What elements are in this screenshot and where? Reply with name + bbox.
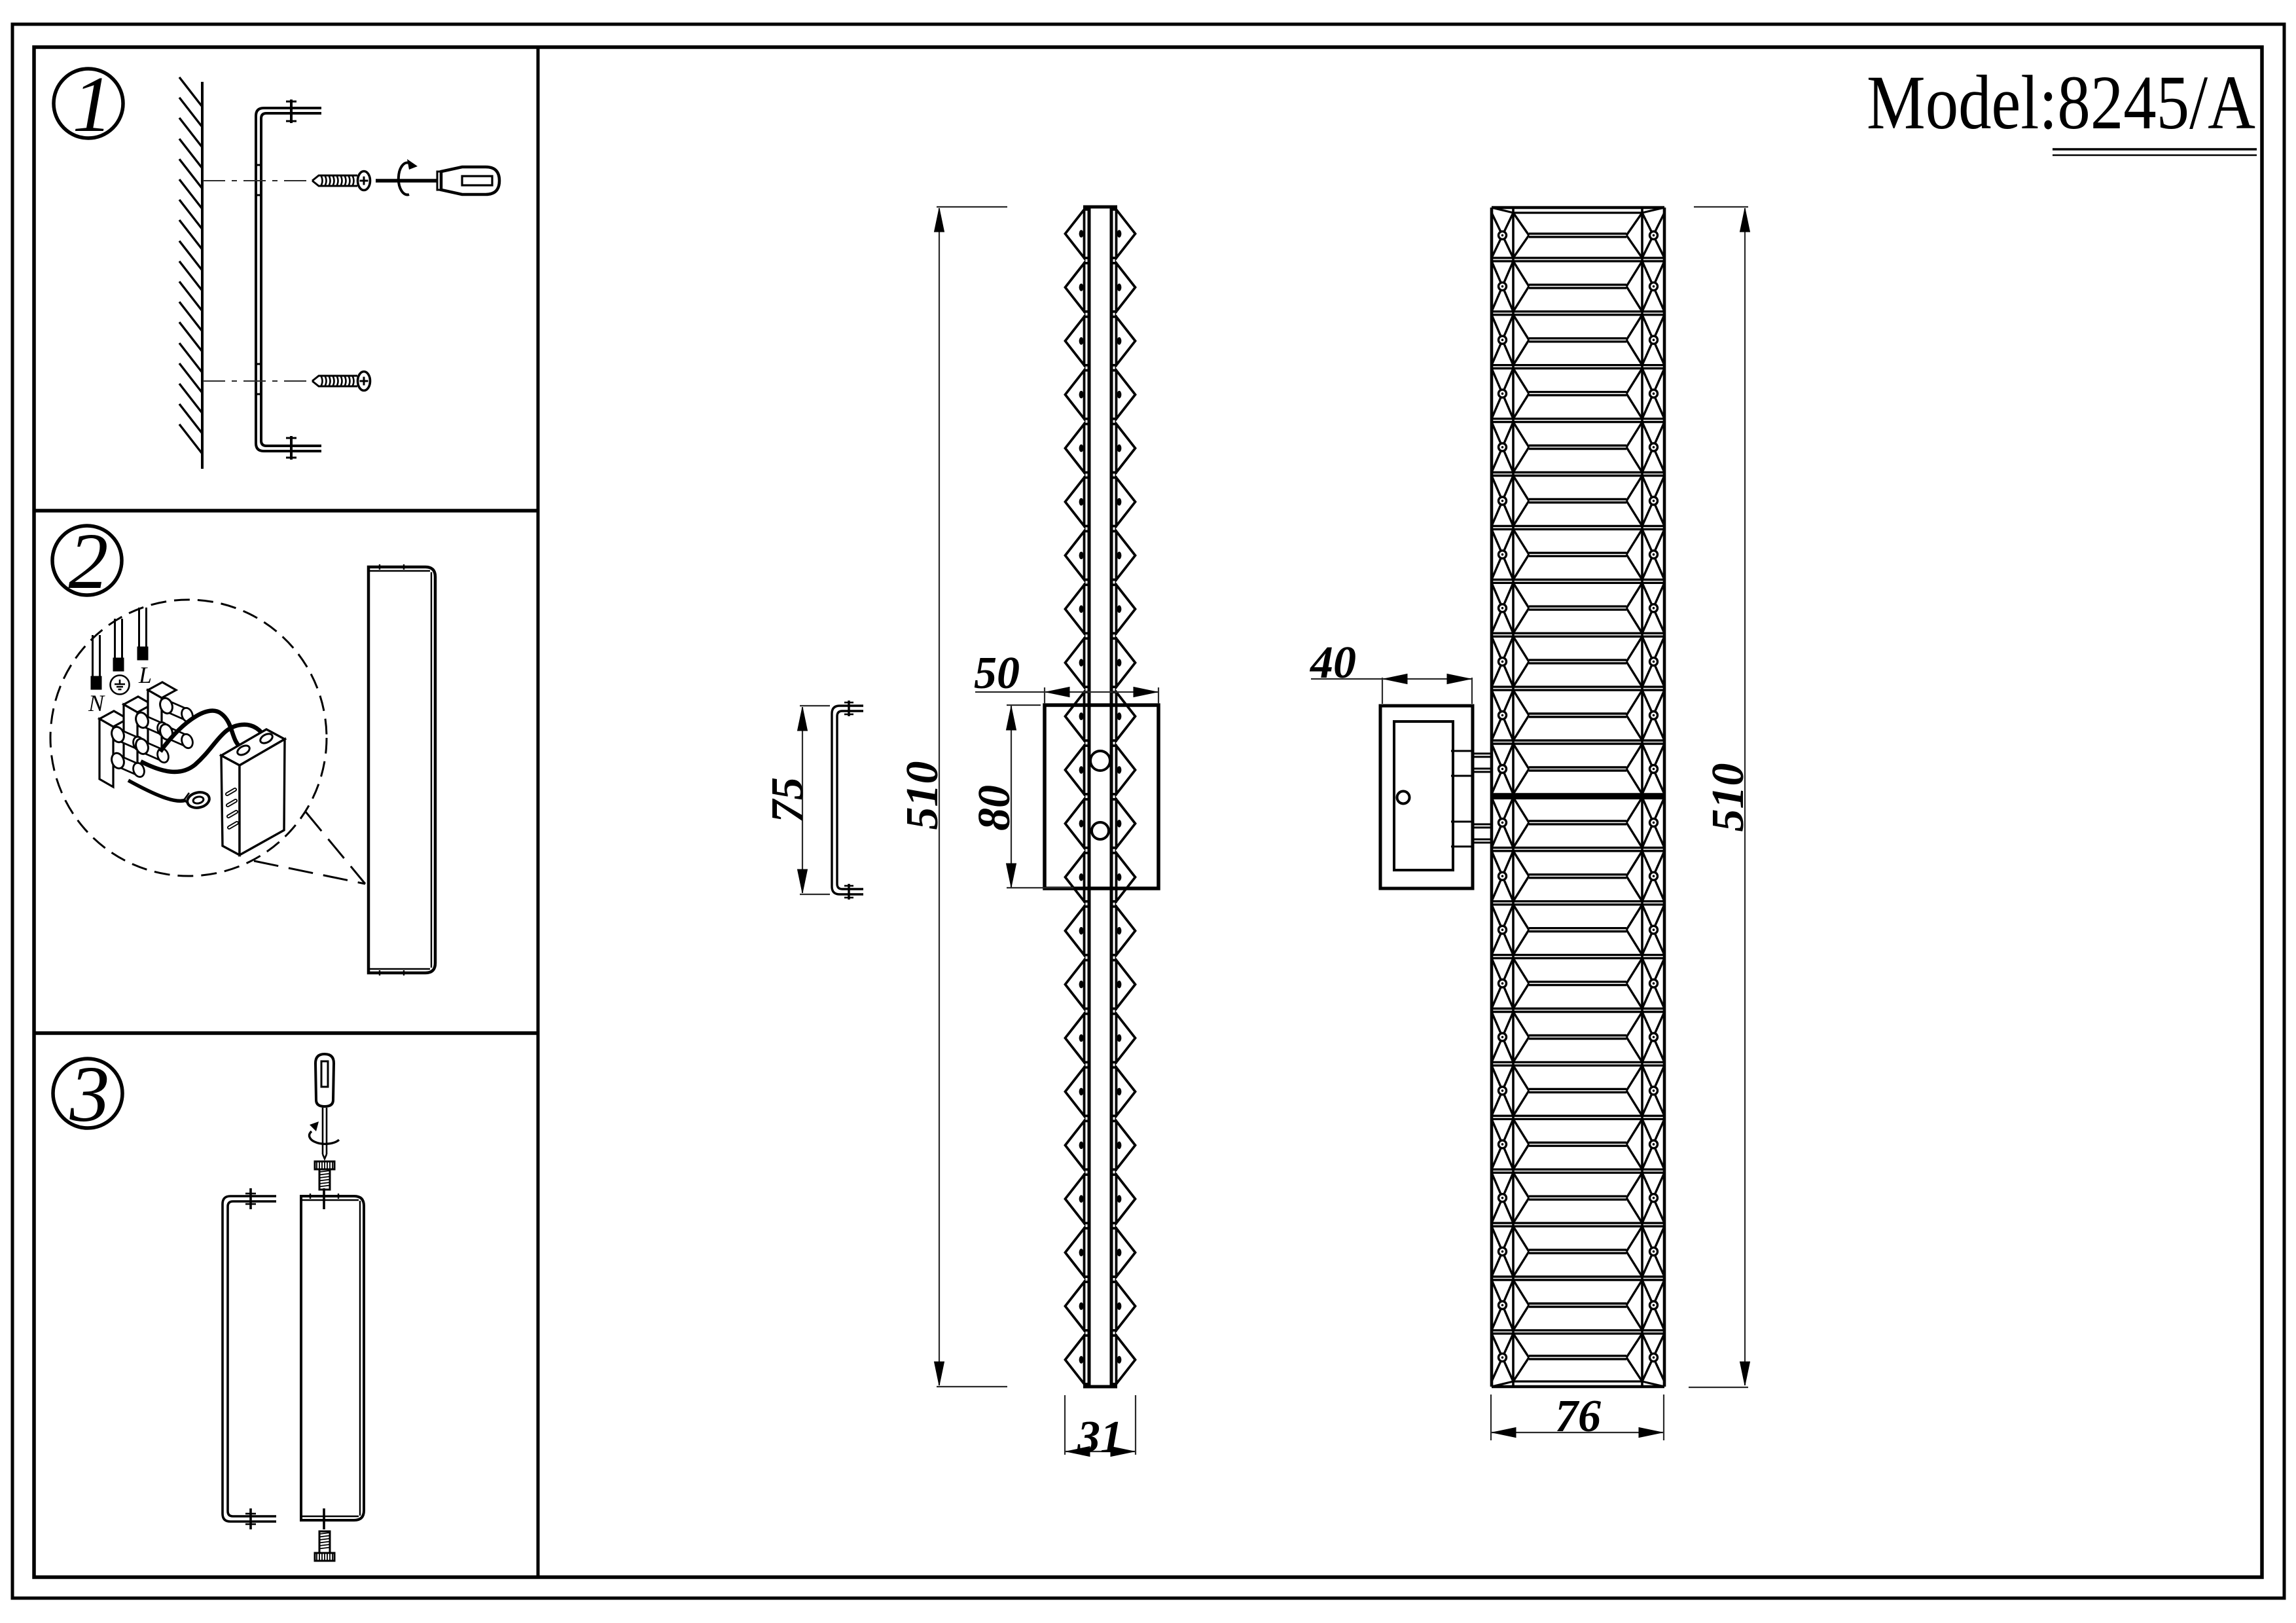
- svg-text:50: 50: [974, 648, 1020, 699]
- svg-text:N: N: [88, 690, 105, 716]
- svg-text:1: 1: [73, 60, 113, 149]
- svg-text:Model:8245/A: Model:8245/A: [1867, 60, 2255, 145]
- svg-text:40: 40: [1309, 638, 1356, 688]
- svg-text:31: 31: [1077, 1412, 1123, 1463]
- svg-text:76: 76: [1555, 1391, 1601, 1442]
- svg-text:510: 510: [1703, 763, 1753, 832]
- svg-text:2: 2: [69, 517, 109, 606]
- svg-text:L: L: [138, 662, 152, 688]
- svg-text:510: 510: [897, 761, 948, 830]
- svg-text:3: 3: [69, 1050, 110, 1139]
- svg-text:75: 75: [762, 777, 813, 823]
- svg-text:80: 80: [969, 785, 1020, 831]
